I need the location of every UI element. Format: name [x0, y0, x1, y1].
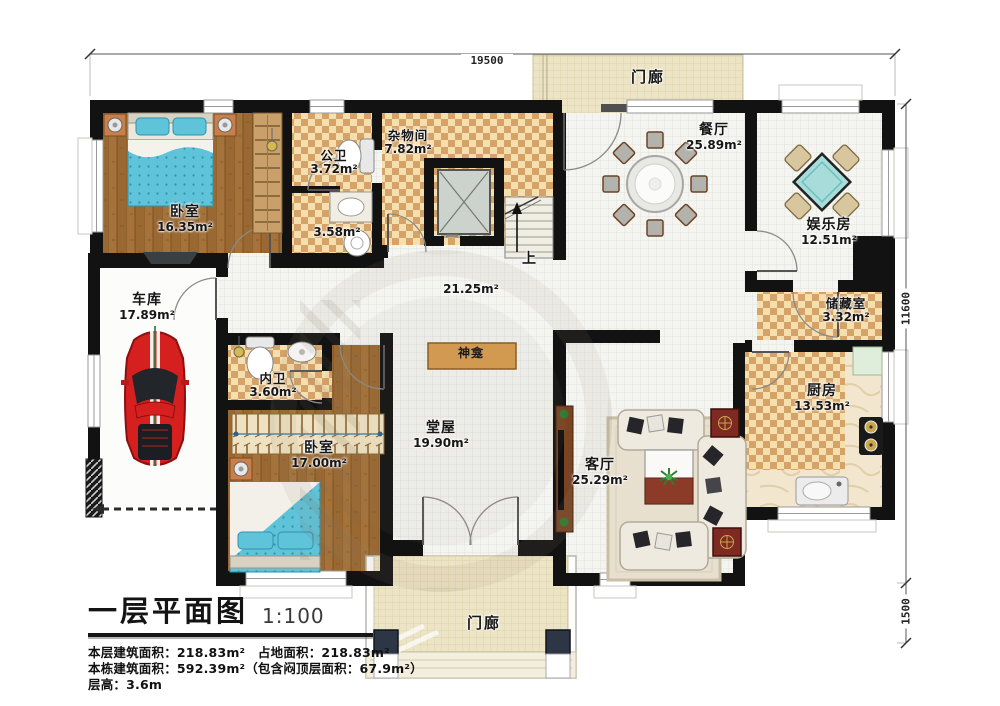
car: [121, 326, 189, 466]
room-label-utility: 杂物间 7.82m²: [384, 129, 431, 156]
dimension-right-upper: 11600: [900, 289, 913, 329]
mahjong-table: [784, 144, 860, 220]
floor-plan-page: 卧室 16.35m² 公卫 3.72m² 3.58m² 杂物间 7.82m² 餐…: [0, 0, 1000, 706]
staircase: [505, 197, 553, 258]
shrine-label: 神龛: [458, 347, 484, 360]
room-label-porch-bottom: 门廊: [467, 615, 501, 632]
room-label-kitchen: 厨房 13.53m²: [794, 384, 850, 413]
info-line-3: 层高：3.6m: [88, 677, 418, 693]
room-label-porch-top: 门廊: [631, 69, 665, 86]
room-label-inner-bath: 内卫 3.60m²: [249, 372, 296, 399]
title-block: 一层平面图 1:100 本层建筑面积：218.83m² 占地面积：218.83m…: [88, 588, 418, 693]
room-label-public-bath: 公卫 3.72m²: [310, 149, 357, 176]
room-label-corridor: 21.25m²: [443, 283, 499, 296]
room-label-storage: 储藏室 3.32m²: [822, 297, 869, 324]
page-title: 一层平面图: [88, 588, 248, 630]
room-label-garage: 车库 17.89m²: [119, 293, 175, 322]
wardrobe-1: [253, 113, 282, 233]
stairs-up-label: 上: [522, 252, 536, 268]
coffee-table: [645, 450, 693, 504]
room-label-living: 客厅 25.29m²: [572, 458, 628, 487]
bed-bench: [143, 252, 198, 264]
info-line-2: 本栋建筑面积：592.39m²（包含闷顶层面积：67.9m²）: [88, 661, 418, 677]
tv-cabinet: [556, 406, 573, 532]
room-label-entertainment: 娱乐房 12.51m²: [801, 218, 857, 247]
door-threshold: [601, 104, 627, 112]
sofa-set: [608, 409, 746, 580]
sink-icon: [338, 198, 364, 216]
elevator: [438, 170, 490, 236]
room-label-bedroom1: 卧室 16.35m²: [157, 205, 213, 234]
room-label-hall: 堂屋 19.90m²: [413, 421, 469, 450]
porch-pillar: [546, 630, 570, 654]
fridge-icon: [853, 347, 882, 375]
room-label-dining: 餐厅 25.89m²: [686, 123, 742, 152]
room-label-bath-lower: 3.58m²: [313, 226, 360, 239]
room-label-bedroom2: 卧室 17.00m²: [291, 441, 347, 470]
info-line-1: 本层建筑面积：218.83m² 占地面积：218.83m²: [88, 645, 418, 661]
plan-scale: 1:100: [262, 604, 325, 630]
dimension-top: 19500: [461, 54, 513, 67]
title-underline: [88, 633, 373, 637]
dimension-right-lower: 1500: [900, 595, 913, 629]
